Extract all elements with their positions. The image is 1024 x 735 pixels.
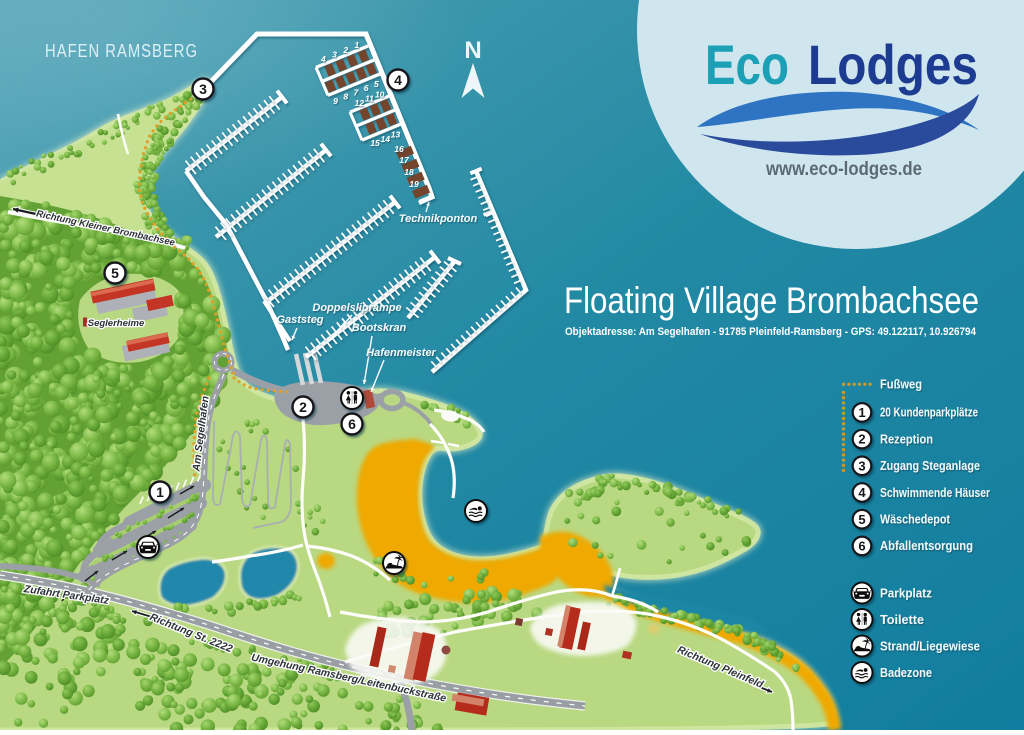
svg-text:Strand/Liegewiese: Strand/Liegewiese [880, 639, 980, 653]
svg-text:Bootskran: Bootskran [352, 322, 407, 334]
svg-text:8: 8 [343, 92, 348, 102]
svg-text:11: 11 [365, 94, 374, 104]
svg-text:9: 9 [333, 96, 338, 106]
svg-text:Technikponton: Technikponton [399, 213, 478, 225]
svg-text:6: 6 [858, 539, 865, 554]
svg-text:N: N [464, 37, 481, 64]
svg-text:Zugang Steganlage: Zugang Steganlage [880, 459, 980, 473]
svg-text:17: 17 [399, 155, 410, 165]
svg-text:10: 10 [375, 89, 385, 99]
svg-text:Toilette: Toilette [880, 613, 924, 627]
svg-text:14: 14 [381, 134, 391, 144]
svg-text:Abfallentsorgung: Abfallentsorgung [880, 539, 973, 553]
svg-text:3: 3 [858, 458, 865, 473]
svg-text:Eco: Eco [705, 33, 789, 96]
svg-text:2: 2 [858, 432, 865, 447]
svg-text:Gaststeg: Gaststeg [276, 314, 323, 326]
svg-text:Floating Village Brombachsee: Floating Village Brombachsee [564, 280, 979, 321]
svg-text:www.eco-lodges.de: www.eco-lodges.de [765, 158, 922, 180]
svg-text:Seglerheime: Seglerheime [88, 318, 145, 329]
svg-text:5: 5 [858, 512, 865, 527]
svg-text:4: 4 [394, 72, 402, 88]
svg-text:1: 1 [858, 405, 865, 420]
svg-text:Wäschedepot: Wäschedepot [880, 513, 951, 527]
svg-text:Schwimmende Häuser: Schwimmende Häuser [880, 486, 990, 500]
svg-text:Doppelsliprampe: Doppelsliprampe [312, 302, 401, 314]
svg-text:3: 3 [332, 49, 337, 59]
svg-text:6: 6 [364, 83, 369, 93]
svg-text:18: 18 [404, 167, 414, 177]
svg-text:16: 16 [394, 144, 404, 154]
svg-text:12: 12 [355, 98, 365, 108]
svg-text:Parkplatz: Parkplatz [880, 586, 932, 600]
svg-text:3: 3 [199, 81, 207, 97]
svg-text:2: 2 [342, 45, 348, 55]
svg-text:5: 5 [111, 265, 119, 281]
svg-text:20 Kundenparkplätze: 20 Kundenparkplätze [880, 406, 978, 420]
svg-text:Lodges: Lodges [808, 33, 978, 96]
svg-text:1: 1 [156, 484, 164, 500]
svg-text:2: 2 [299, 399, 307, 415]
svg-text:19: 19 [409, 179, 419, 189]
svg-text:4: 4 [320, 54, 326, 64]
svg-text:Rezeption: Rezeption [880, 432, 933, 446]
svg-text:13: 13 [391, 130, 401, 140]
svg-text:5: 5 [374, 79, 379, 89]
svg-text:4: 4 [858, 485, 866, 500]
svg-text:HAFEN RAMSBERG: HAFEN RAMSBERG [45, 41, 198, 61]
svg-text:Badezone: Badezone [880, 666, 932, 680]
svg-text:1: 1 [354, 40, 359, 50]
svg-text:Hafenmeister: Hafenmeister [366, 347, 436, 359]
svg-text:15: 15 [370, 138, 380, 148]
svg-text:Fußweg: Fußweg [880, 378, 922, 392]
svg-text:Objektadresse: Am Segelhafen -: Objektadresse: Am Segelhafen - 91785 Ple… [565, 326, 977, 338]
svg-text:6: 6 [348, 416, 356, 432]
